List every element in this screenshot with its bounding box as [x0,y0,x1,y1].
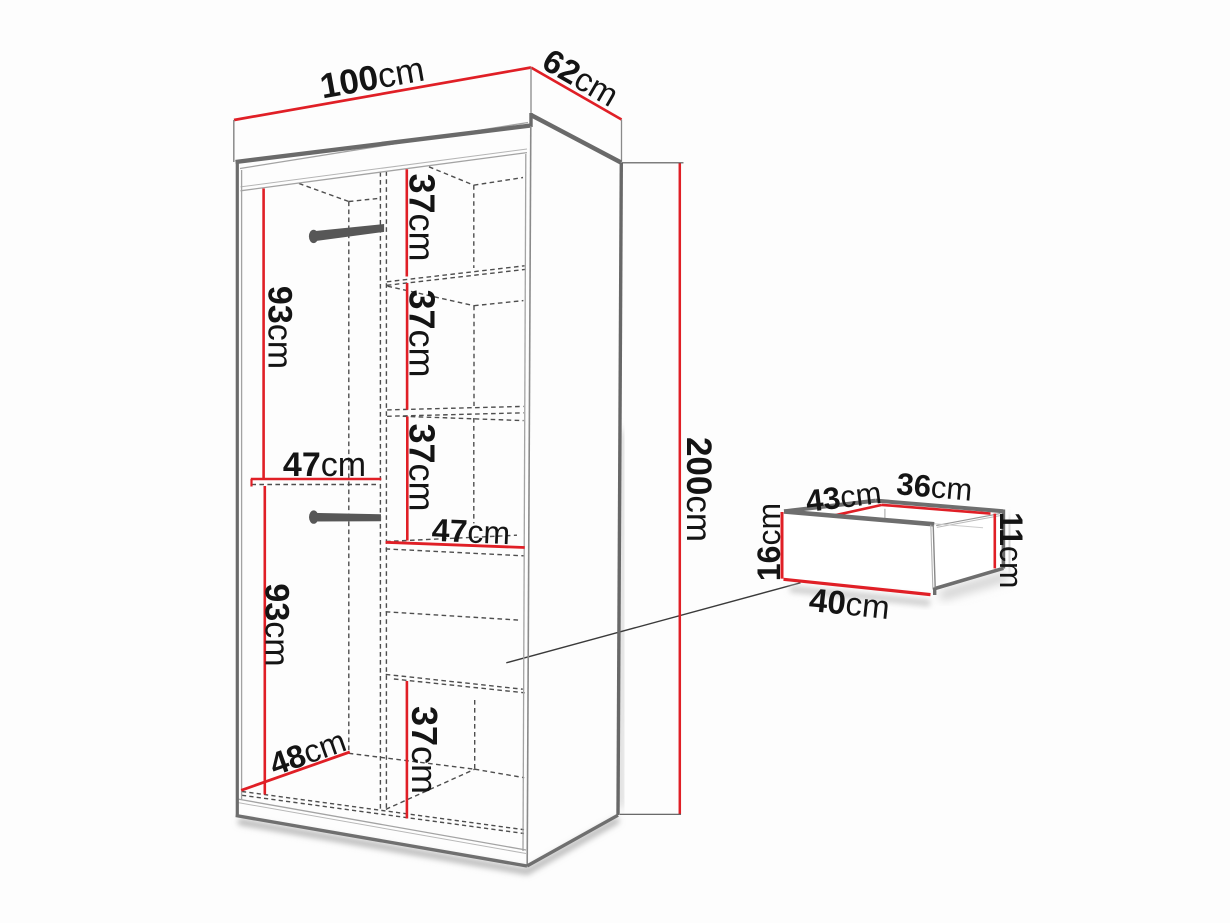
svg-text:62cm: 62cm [537,41,625,113]
svg-text:93cm: 93cm [258,583,296,666]
svg-text:47cm: 47cm [283,446,366,484]
svg-text:11cm: 11cm [993,512,1029,588]
svg-text:36cm: 36cm [895,466,974,507]
svg-text:48cm: 48cm [265,722,351,782]
svg-text:93cm: 93cm [261,286,299,369]
svg-text:47cm: 47cm [431,512,511,551]
svg-text:100cm: 100cm [317,50,427,107]
svg-text:200cm: 200cm [679,437,718,542]
svg-text:40cm: 40cm [807,581,891,626]
svg-text:37cm: 37cm [402,289,443,377]
svg-text:37cm: 37cm [402,173,443,261]
svg-text:37cm: 37cm [404,706,445,794]
svg-text:16cm: 16cm [751,503,787,581]
svg-text:37cm: 37cm [402,423,443,511]
